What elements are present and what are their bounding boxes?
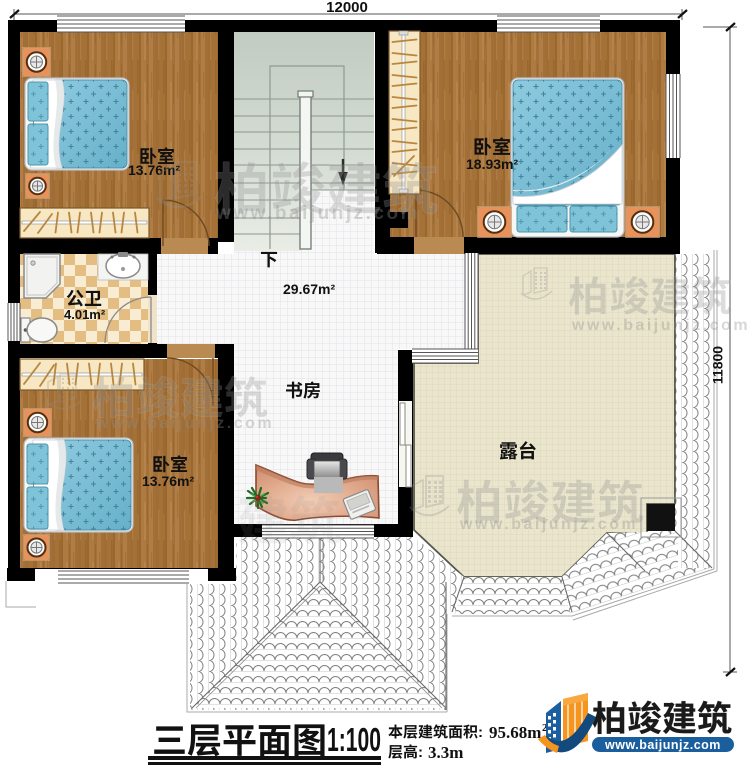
- svg-text:4.01m²: 4.01m²: [64, 307, 106, 322]
- svg-text:www.baijunjz.com: www.baijunjz.com: [571, 317, 750, 334]
- svg-text:3.3m: 3.3m: [428, 743, 463, 762]
- svg-text:12000: 12000: [326, 0, 368, 16]
- svg-text:1:100: 1:100: [327, 721, 381, 758]
- svg-text::: :: [478, 724, 483, 741]
- svg-text:www.baijunjz.com: www.baijunjz.com: [95, 415, 274, 432]
- svg-text:29.67m²: 29.67m²: [283, 281, 335, 297]
- svg-text:11800: 11800: [710, 346, 726, 384]
- svg-text:www.baijunjz.com: www.baijunjz.com: [215, 203, 420, 224]
- svg-text::: :: [418, 744, 423, 761]
- svg-text:18.93m²: 18.93m²: [466, 156, 518, 172]
- svg-text:www.baijunjz.com: www.baijunjz.com: [459, 516, 638, 533]
- svg-text:95.68m: 95.68m: [489, 723, 541, 742]
- svg-text:www.baijunjz.com: www.baijunjz.com: [604, 738, 721, 752]
- svg-text:13.76m²: 13.76m²: [142, 473, 194, 489]
